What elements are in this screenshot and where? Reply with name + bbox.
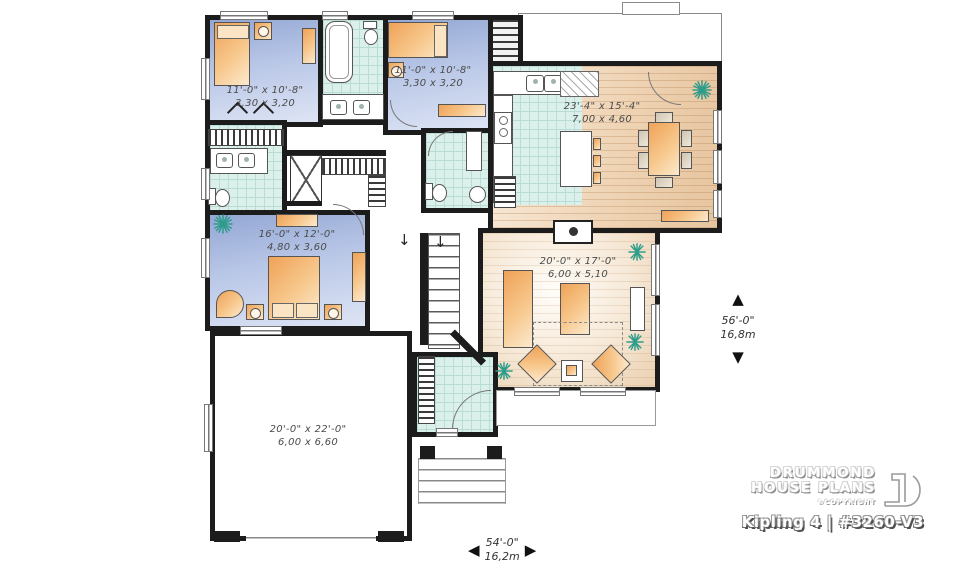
lamp-icon — [250, 308, 261, 319]
closet-rod-icon — [418, 356, 435, 424]
closet-rod-icon — [322, 158, 386, 175]
dim-metric: 7,00 x 4,60 — [564, 113, 641, 126]
brand-copyright: ©COPYRIGHT — [751, 498, 876, 506]
closet-rod-icon — [208, 129, 284, 146]
plant-icon — [495, 362, 513, 380]
floor-plan: ↓ ↓ 11'-0" x 10'-8" 3,30 x 3,2 — [0, 0, 960, 569]
window — [651, 244, 660, 296]
pillow-icon — [434, 25, 447, 57]
lamp-icon — [258, 26, 269, 37]
pillow-icon — [296, 303, 318, 318]
stairs-down-arrow: ↓ — [434, 235, 447, 250]
window — [240, 326, 282, 335]
dim-metric: 3,30 x 3,20 — [227, 97, 304, 110]
drummond-logo-icon — [882, 466, 924, 512]
dim-imperial: 11'-0" x 10'-8" — [395, 64, 472, 77]
nightstand-icon — [254, 22, 272, 40]
door-arc — [333, 204, 364, 235]
overall-depth-dimension: ▲ 56'-0" 16,8m ▼ — [710, 292, 766, 364]
bathtub-icon — [325, 21, 353, 83]
toilet-icon — [215, 189, 230, 207]
toilet-icon — [364, 29, 378, 45]
stove-icon — [494, 112, 512, 144]
sideboard-icon — [661, 210, 709, 222]
dresser-icon — [302, 28, 316, 64]
kitchen-sink-icon — [526, 75, 544, 92]
depth-imperial: 56'-0" — [721, 314, 754, 328]
cabinet-icon — [466, 131, 482, 171]
window — [201, 58, 210, 100]
arrow-down-icon: ▼ — [732, 350, 744, 364]
room-label-garage: 20'-0" x 22'-0" 6,00 x 6,60 — [270, 423, 347, 449]
closet-rod-icon — [368, 175, 386, 207]
arrow-right-icon: ▶ — [525, 543, 537, 557]
chair-icon — [681, 152, 692, 169]
arrow-left-icon: ◀ — [468, 543, 480, 557]
burner-icon — [499, 116, 508, 125]
dresser-icon — [276, 214, 318, 227]
sofa-icon — [503, 270, 533, 348]
sink-icon — [238, 153, 255, 168]
window — [713, 190, 722, 218]
plan-title: Kipling 4 | #3260-V3 — [740, 513, 924, 531]
dim-metric: 3,30 x 3,20 — [395, 77, 472, 90]
brand-text: DRUMMOND HOUSE PLANS ©COPYRIGHT — [751, 466, 876, 506]
fireplace-dot — [569, 227, 578, 236]
garage-door — [246, 533, 376, 542]
sink-icon — [216, 153, 233, 168]
window — [322, 11, 348, 20]
window — [713, 150, 722, 184]
window — [713, 110, 722, 144]
room-label-bedroom2: 11'-0" x 10'-8" 3,30 x 3,20 — [395, 64, 472, 90]
garage-post — [214, 531, 240, 542]
depth-metric: 16,8m — [720, 328, 755, 342]
window — [436, 428, 458, 437]
stairs-down-arrow: ↓ — [398, 233, 411, 248]
garage-post — [378, 531, 404, 542]
plant-icon — [628, 243, 646, 261]
plant-icon — [692, 80, 712, 100]
pillow-icon — [217, 25, 249, 39]
window — [412, 11, 454, 20]
room-label-kitchen-dining: 23'-4" x 15'-4" 7,00 x 4,60 — [564, 100, 641, 126]
chair-icon — [638, 152, 649, 169]
chair-icon — [655, 177, 673, 188]
linen-closet-icon — [290, 155, 322, 205]
plant-icon — [626, 333, 644, 351]
corner-counter — [560, 71, 599, 97]
dim-imperial: 23'-4" x 15'-4" — [564, 100, 641, 113]
window — [580, 387, 626, 396]
brand-name-line2: HOUSE PLANS — [751, 481, 876, 496]
window — [204, 404, 213, 452]
nightstand-icon — [246, 304, 264, 320]
tv-console-icon — [630, 287, 645, 331]
chair-icon — [681, 130, 692, 147]
stool-icon — [593, 138, 601, 150]
room-label-master-bedroom: 16'-0" x 12'-0" 4,80 x 3,60 — [259, 228, 336, 254]
dim-metric: 6,00 x 5,10 — [540, 268, 617, 281]
toilet-icon — [432, 184, 447, 202]
dim-metric: 6,00 x 6,60 — [270, 436, 347, 449]
width-metric: 16,2m — [485, 550, 520, 564]
pillow-icon — [272, 303, 294, 318]
stair-wall — [420, 233, 428, 345]
lamp-icon — [328, 308, 339, 319]
stool-icon — [593, 155, 601, 167]
dim-imperial: 16'-0" x 12'-0" — [259, 228, 336, 241]
window — [201, 238, 210, 278]
dim-metric: 4,80 x 3,60 — [259, 241, 336, 254]
dim-imperial: 11'-0" x 10'-8" — [227, 84, 304, 97]
brand-block: DRUMMOND HOUSE PLANS ©COPYRIGHT — [742, 466, 924, 512]
chair-icon — [655, 112, 673, 123]
plant-icon — [213, 214, 233, 234]
width-imperial: 54'-0" — [485, 536, 520, 550]
brand-name-line1: DRUMMOND — [751, 466, 876, 481]
room-label-bedroom1: 11'-0" x 10'-8" 3,30 x 3,20 — [227, 84, 304, 110]
burner-icon — [499, 128, 508, 137]
window — [201, 168, 210, 200]
dresser-icon — [352, 252, 366, 302]
window — [220, 11, 268, 20]
nightstand-icon — [324, 304, 342, 320]
toilet-tank-icon — [363, 21, 377, 29]
kitchen-island-icon — [560, 131, 592, 187]
deck-bump-outline — [622, 2, 680, 15]
arrow-up-icon: ▲ — [732, 292, 744, 306]
chair-icon — [638, 130, 649, 147]
pantry-icon — [494, 176, 516, 208]
overall-width-dimension: ◀ 54'-0" 16,2m ▶ — [468, 536, 536, 564]
dining-table-icon — [648, 122, 680, 176]
sink-icon — [353, 100, 370, 115]
window — [514, 387, 560, 396]
porch-post — [487, 446, 502, 459]
stool-icon — [593, 172, 601, 184]
side-table-lamp-icon — [566, 365, 577, 376]
deck-outline — [518, 13, 722, 65]
porch-post — [420, 446, 435, 459]
pedestal-sink-icon — [469, 186, 486, 203]
armchair-icon — [216, 290, 244, 318]
front-steps — [418, 458, 506, 504]
dim-imperial: 20'-0" x 22'-0" — [270, 423, 347, 436]
room-label-living: 20'-0" x 17'-0" 6,00 x 5,10 — [540, 255, 617, 281]
dim-imperial: 20'-0" x 17'-0" — [540, 255, 617, 268]
sink-icon — [330, 100, 347, 115]
window — [651, 304, 660, 356]
wall-segment — [286, 201, 322, 206]
dresser-icon — [438, 104, 486, 117]
